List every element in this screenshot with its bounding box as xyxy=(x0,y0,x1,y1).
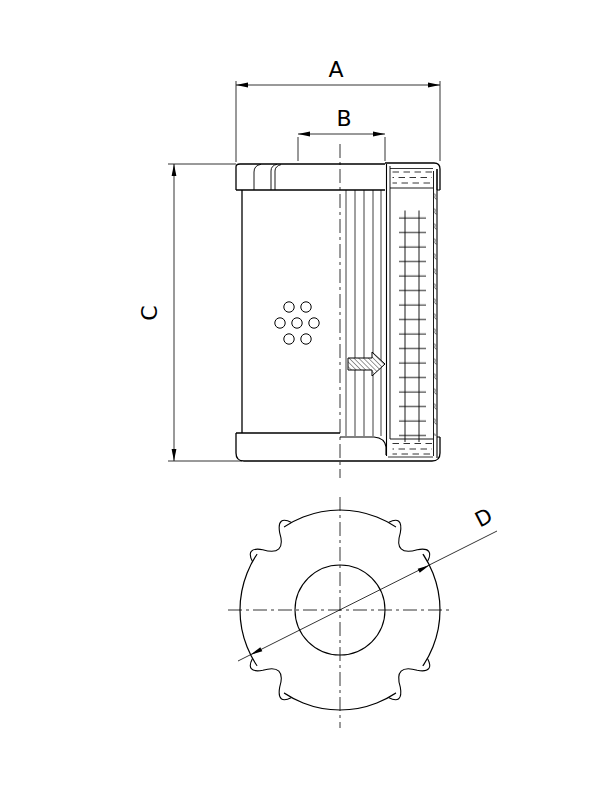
support-mesh xyxy=(399,211,426,444)
arrowhead-icon xyxy=(251,647,263,654)
arrowhead-icon xyxy=(298,132,310,137)
arrowhead-icon xyxy=(236,83,248,88)
flow-arrow-icon xyxy=(348,352,385,376)
hole xyxy=(275,318,285,328)
perforation-holes xyxy=(275,302,319,344)
hole xyxy=(292,318,302,328)
dimension-b: B xyxy=(298,106,385,161)
hole xyxy=(309,318,319,328)
top-end-cap xyxy=(236,163,440,190)
bottom-view: D xyxy=(228,497,497,728)
potting-top xyxy=(393,172,433,183)
dimension-label-b: B xyxy=(336,106,351,131)
hole xyxy=(284,302,294,312)
hole xyxy=(284,334,294,344)
flow-direction-arrow xyxy=(348,352,385,376)
potting-bottom xyxy=(393,444,433,455)
arrowhead-icon xyxy=(172,164,177,176)
cap-contour-line xyxy=(254,164,261,190)
hole xyxy=(301,302,311,312)
cap-contour-line xyxy=(275,165,281,190)
pleat-lines xyxy=(346,190,381,436)
dimension-label-d: D xyxy=(471,503,496,532)
arrowhead-icon xyxy=(428,83,440,88)
filter-media-section xyxy=(387,164,438,458)
technical-drawing: A B C xyxy=(0,0,612,792)
arrowhead-icon xyxy=(418,565,430,572)
side-view: A B C xyxy=(137,57,440,478)
dimension-label-a: A xyxy=(328,57,343,82)
drawing-canvas: A B C xyxy=(0,0,612,792)
arrowhead-icon xyxy=(172,449,177,461)
arrowhead-icon xyxy=(373,132,385,137)
seam-squiggle xyxy=(434,192,438,436)
hole xyxy=(301,334,311,344)
dimension-c: C xyxy=(137,164,242,461)
dimension-label-c: C xyxy=(137,305,162,320)
